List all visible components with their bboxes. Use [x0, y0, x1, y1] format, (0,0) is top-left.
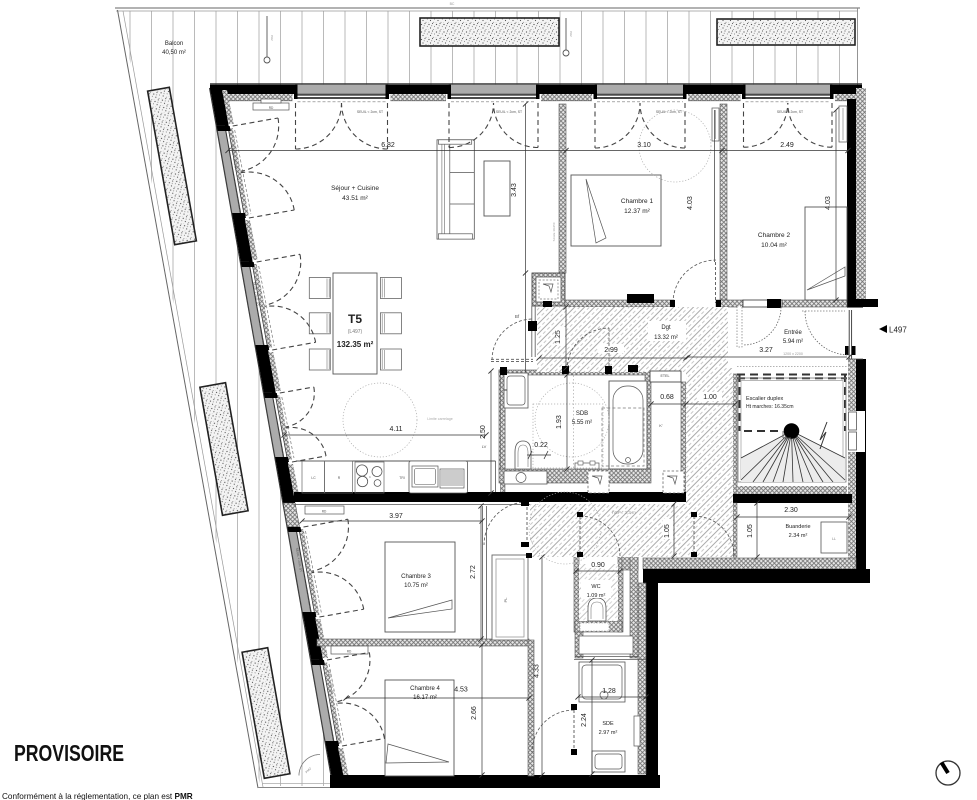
svg-text:S-boite 10x150: S-boite 10x150: [552, 222, 556, 241]
svg-text:Entrée: Entrée: [784, 330, 802, 336]
svg-text:2.30: 2.30: [784, 507, 798, 514]
svg-text:LC: LC: [311, 476, 316, 480]
svg-text:3.97: 3.97: [389, 513, 403, 520]
svg-text:Buanderie: Buanderie: [785, 524, 810, 530]
svg-text:2.49: 2.49: [780, 142, 794, 149]
svg-text:SDB: SDB: [576, 411, 588, 417]
svg-text:2.99: 2.99: [604, 347, 618, 354]
svg-text:1.00: 1.00: [703, 394, 717, 401]
svg-text:ETEL: ETEL: [661, 374, 670, 378]
svg-text:K': K': [659, 423, 663, 428]
svg-text:TRI: TRI: [399, 476, 405, 480]
svg-text:(L497): (L497): [348, 329, 363, 335]
svg-text:10.75 m²: 10.75 m²: [404, 583, 428, 589]
svg-text:Conformément à la réglementati: Conformément à la réglementation, ce pla…: [2, 792, 193, 800]
svg-text:RD: RD: [347, 650, 352, 654]
svg-text:SEUIL < 2cm, ST: SEUIL < 2cm, ST: [357, 110, 383, 114]
svg-text:2.24: 2.24: [581, 713, 588, 727]
svg-text:1.05: 1.05: [664, 524, 671, 538]
svg-text:0.22: 0.22: [534, 442, 548, 449]
svg-text:PL: PL: [503, 597, 508, 603]
svg-text:2.50: 2.50: [480, 425, 487, 439]
svg-text:RD: RD: [322, 510, 327, 514]
svg-text:SEUIL < 2cm, ST: SEUIL < 2cm, ST: [777, 110, 803, 114]
svg-text:0.90: 0.90: [591, 562, 605, 569]
svg-text:Bf: Bf: [515, 314, 520, 319]
svg-text:Chambre 2: Chambre 2: [758, 232, 791, 239]
svg-text:Séjour + Cuisine: Séjour + Cuisine: [331, 185, 379, 192]
svg-text:5.94 m²: 5.94 m²: [783, 339, 803, 345]
svg-text:T5: T5: [348, 312, 362, 326]
svg-text:Chambre 4: Chambre 4: [410, 686, 440, 692]
svg-text:1.93: 1.93: [556, 415, 563, 429]
svg-text:0.68: 0.68: [660, 394, 674, 401]
svg-text:6.82: 6.82: [381, 142, 395, 149]
svg-text:4.11: 4.11: [389, 426, 402, 433]
svg-text:PAV: PAV: [569, 31, 573, 37]
svg-text:1.28: 1.28: [602, 688, 616, 695]
svg-text:3.43: 3.43: [511, 183, 518, 197]
svg-text:Chambre 3: Chambre 3: [401, 574, 431, 580]
svg-text:1.25: 1.25: [555, 330, 562, 344]
svg-text:4.33: 4.33: [534, 664, 541, 678]
svg-text:5.55 m²: 5.55 m²: [572, 420, 592, 426]
svg-text:PAV: PAV: [270, 35, 274, 41]
svg-text:40,50 m²: 40,50 m²: [162, 50, 186, 56]
svg-text:2.72: 2.72: [470, 565, 477, 579]
svg-text:Chambre 1: Chambre 1: [621, 198, 654, 205]
svg-text:1.05: 1.05: [747, 524, 754, 538]
svg-text:4.03: 4.03: [825, 196, 832, 210]
svg-text:43.51 m²: 43.51 m²: [342, 195, 368, 202]
svg-text:132.35 m²: 132.35 m²: [337, 340, 374, 349]
svg-text:3.10: 3.10: [637, 142, 651, 149]
svg-text:LL: LL: [832, 537, 836, 541]
svg-text:2.34 m²: 2.34 m²: [789, 533, 808, 539]
svg-text:2.97 m²: 2.97 m²: [599, 730, 618, 736]
svg-text:hSP : 2,3 m: hSP : 2,3 m: [612, 510, 636, 515]
svg-text:PROVISOIRE: PROVISOIRE: [14, 740, 124, 766]
svg-text:Ht marches: 16.35cm: Ht marches: 16.35cm: [746, 404, 794, 410]
svg-text:13.32 m²: 13.32 m²: [654, 335, 678, 341]
svg-text:12.37 m²: 12.37 m²: [624, 208, 650, 215]
svg-text:RD: RD: [269, 106, 274, 110]
svg-text:Dgt: Dgt: [661, 325, 671, 331]
svg-text:10.04 m²: 10.04 m²: [761, 242, 787, 249]
svg-text:L497: L497: [889, 326, 907, 335]
svg-text:SEUIL < 2cm, ST: SEUIL < 2cm, ST: [496, 110, 522, 114]
svg-text:Escalier duplex: Escalier duplex: [746, 396, 784, 402]
svg-text:4.03: 4.03: [687, 196, 694, 210]
svg-text:Balcon: Balcon: [165, 41, 183, 47]
svg-text:3.27: 3.27: [759, 347, 773, 354]
svg-text:4.53: 4.53: [454, 687, 468, 694]
svg-text:LV: LV: [482, 444, 487, 449]
svg-text:SEUIL < 2cm, ST: SEUIL < 2cm, ST: [656, 110, 682, 114]
svg-text:2.66: 2.66: [471, 706, 478, 720]
svg-text:WC: WC: [591, 584, 600, 590]
svg-text:SDE: SDE: [602, 721, 614, 727]
svg-text:Limite carrelage: Limite carrelage: [427, 417, 453, 421]
svg-text:BC: BC: [450, 2, 455, 6]
svg-text:1200 x 2200: 1200 x 2200: [783, 352, 803, 356]
svg-text:1.09 m²: 1.09 m²: [587, 593, 606, 599]
